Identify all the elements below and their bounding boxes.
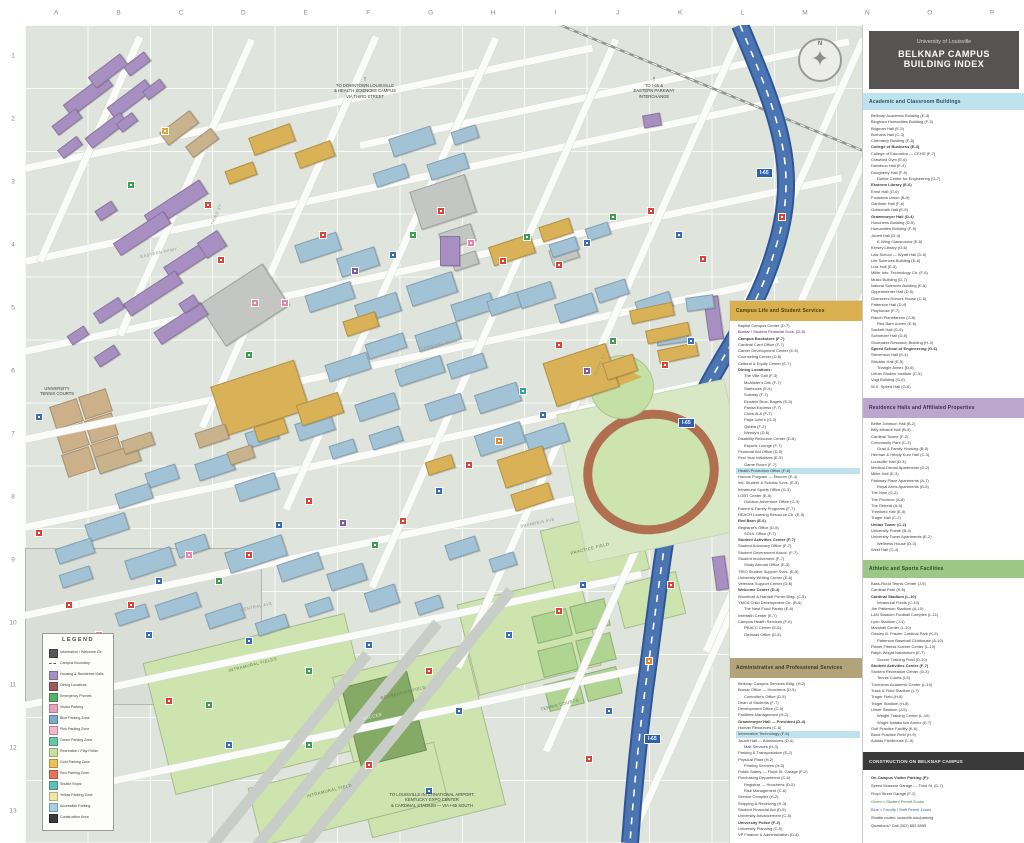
legend-color-swatch	[49, 814, 58, 823]
legend-color-swatch	[49, 649, 58, 658]
section-header: Administrative and Professional Services	[730, 658, 864, 678]
legend-item: Recreation / Play Fields	[43, 746, 113, 757]
grid-number: 8	[11, 493, 15, 500]
building-index-sidebar: University of Louisville BELKNAP CAMPUS …	[862, 25, 1024, 843]
north-arrow-icon: ↑	[606, 76, 702, 83]
annotation-line: VIA THIRD STREET	[300, 94, 430, 99]
index-entry: Adidas Fieldhouse (L-9)	[869, 738, 1021, 744]
grid-letter: J	[616, 10, 619, 17]
index-entry: Shuttle routes: louisville.edu/parking	[869, 814, 1021, 822]
map-legend: LEGEND Information / Welcome Ctr.Campus …	[42, 633, 114, 831]
grid-number: 11	[10, 682, 17, 689]
index-entry: Floyd Street Garage (F-2)	[869, 790, 1021, 798]
legend-color-swatch	[49, 726, 58, 735]
street-name-label: THIRD ST	[209, 203, 223, 226]
grid-letter: A	[54, 10, 58, 17]
grid-number: 2	[11, 116, 15, 123]
university-name: University of Louisville	[869, 31, 1019, 45]
legend-item-label: Visitor Parking	[60, 705, 83, 709]
boundary-line-swatch	[49, 663, 56, 664]
section-header: CONSTRUCTION ON BELKNAP CAMPUS	[863, 752, 1024, 770]
academic-buildings-list: Belknap Academic Building (E-4)Bingham H…	[869, 113, 1021, 395]
legend-color-swatch	[49, 693, 58, 702]
index-entry: Speed Museum Garage — Third St. (D-7)	[869, 782, 1021, 790]
annotation-line: TENNIS COURTS	[26, 391, 88, 396]
grid-letter: E	[304, 10, 308, 17]
residence-halls-list: Bettie Johnson Hall (B-2)Billy Minardi H…	[869, 421, 1021, 556]
legend-item: Dining Locations	[43, 680, 113, 691]
grid-letter: O	[927, 10, 932, 17]
annotation-line: INTERCHANGE	[606, 94, 702, 99]
legend-item: Pink Parking Zone	[43, 724, 113, 735]
legend-color-swatch	[49, 803, 58, 812]
street-name-label: CARDINAL BLVD	[420, 338, 458, 351]
field-label: TENNIS COURTS	[540, 697, 579, 711]
legend-color-swatch	[49, 770, 58, 779]
section-header: Campus Life and Student Services	[730, 301, 864, 321]
legend-item-label: Emergency Phones	[60, 694, 91, 698]
index-entry: Green = Student Permit Zones	[869, 798, 1021, 806]
legend-color-swatch	[49, 748, 58, 757]
grid-letter: F	[366, 10, 370, 17]
legend-title: LEGEND	[43, 634, 113, 647]
sidebar-title-line2: BUILDING INDEX	[869, 59, 1019, 69]
grid-letter: H	[491, 10, 496, 17]
campus-life-list: Baptist Campus Center (D-7)Bursar / Stud…	[736, 323, 860, 656]
grid-number: 5	[11, 305, 15, 312]
field-label: PRACTICE FIELD	[570, 541, 610, 555]
legend-item-label: Pink Parking Zone	[60, 727, 89, 731]
legend-color-swatch	[49, 759, 58, 768]
floating-index-panel: Campus Life and Student ServicesBaptist …	[729, 300, 865, 843]
street-name-label: BRANDEIS AVE	[520, 516, 555, 528]
legend-item-label: Shuttle Stops	[60, 782, 81, 786]
grid-letter: L	[741, 10, 745, 17]
grid-number: 3	[11, 179, 15, 186]
legend-item-label: Blue Parking Zone	[60, 716, 90, 720]
legend-item: Yellow Parking Zone	[43, 790, 113, 801]
legend-item: Accessible Parking	[43, 801, 113, 812]
legend-item-label: Campus Boundary	[60, 661, 90, 665]
legend-color-swatch	[49, 704, 58, 713]
grid-number: 9	[11, 556, 15, 563]
interstate-65-shield: I-65	[756, 168, 773, 178]
index-entry: VP Finance & Administration (D-4)	[736, 832, 860, 838]
grid-number: 12	[9, 745, 16, 752]
field-label: INTRAMURAL FIELD	[306, 782, 352, 798]
legend-item: Blue Parking Zone	[43, 713, 113, 724]
map-annotation: ↑TO I-65 &EASTERN PARKWAYINTERCHANGE	[606, 76, 702, 99]
index-entry: On-Campus Visitor Parking (P):	[869, 774, 1021, 782]
legend-color-swatch	[49, 792, 58, 801]
section-header: Residence Halls and Affiliated Propertie…	[863, 398, 1024, 418]
interstate-65-shield: I-65	[644, 734, 661, 744]
field-label: SOCCER	[362, 712, 383, 722]
map-annotation: TO LOUISVILLE INTERNATIONAL AIRPORT,KENT…	[352, 792, 512, 808]
legend-color-swatch	[49, 671, 58, 680]
legend-color-swatch	[49, 781, 58, 790]
legend-item-label: Information / Welcome Ctr.	[60, 650, 102, 654]
index-entry: Ombuds Office (D-5)	[736, 632, 860, 638]
athletic-facilities-list: Bass-Rudd Tennis Center (J-9)Cardinal Pa…	[869, 581, 1021, 748]
legend-item-label: Housing & Residence Halls	[60, 672, 104, 676]
legend-item: Housing & Residence Halls	[43, 669, 113, 680]
legend-item: Emergency Phones	[43, 691, 113, 702]
grid-ruler-top: ABCDEFGHIJKLMNOP	[0, 0, 1024, 25]
interstate-65-shield: I-65	[678, 418, 695, 428]
grid-number: 7	[11, 430, 15, 437]
grid-letter: K	[678, 10, 682, 17]
grid-letter: N	[865, 10, 870, 17]
grid-ruler-left: 12345678910111213	[0, 0, 25, 843]
legend-item-label: Red Parking Zone	[60, 771, 89, 775]
legend-color-swatch	[49, 682, 58, 691]
grid-number: 13	[9, 808, 16, 815]
map-annotation: ↑TO DOWNTOWN LOUISVILLE& HEALTH SCIENCES…	[300, 76, 430, 99]
sidebar-title-block: University of Louisville BELKNAP CAMPUS …	[869, 31, 1019, 89]
legend-item: Green Parking Zone	[43, 735, 113, 746]
legend-item: Visitor Parking	[43, 702, 113, 713]
index-entry: West Hall (C-4)	[869, 547, 1021, 553]
north-arrow-icon: ↑	[300, 76, 430, 83]
grid-number: 10	[9, 619, 16, 626]
campus-map-page: I-65I-65I-65↑TO DOWNTOWN LOUISVILLE& HEA…	[0, 0, 1024, 843]
grid-number: 4	[11, 242, 15, 249]
street-name-label: FLOYD ST	[593, 353, 607, 377]
notes: On-Campus Visitor Parking (P):Speed Muse…	[869, 774, 1021, 838]
legend-item-label: Green Parking Zone	[60, 738, 92, 742]
legend-item-label: Recreation / Play Fields	[60, 749, 98, 753]
grid-letter: I	[554, 10, 556, 17]
street-name-label: EASTERN PKWY	[140, 246, 178, 259]
section-header: Academic and Classroom Buildings	[863, 93, 1024, 110]
legend-rows: Information / Welcome Ctr.Campus Boundar…	[43, 647, 113, 823]
section-header: Athletic and Sports Facilities	[863, 560, 1024, 578]
annotation-line: & CARDINAL STADIUM — VIA I-65 SOUTH	[352, 803, 512, 808]
legend-item: Red Parking Zone	[43, 768, 113, 779]
grid-letter: C	[179, 10, 184, 17]
grid-letter: M	[802, 10, 807, 17]
legend-item-label: Gold Parking Zone	[60, 760, 90, 764]
legend-item: Shuttle Stops	[43, 779, 113, 790]
index-entry: Blue = Faculty / Staff Permit Zones	[869, 806, 1021, 814]
street-name-label: CENTRAL AVE	[240, 601, 273, 613]
field-label: INTRAMURAL FIELDS	[228, 656, 277, 673]
legend-item-label: Yellow Parking Zone	[60, 793, 93, 797]
legend-item: Gold Parking Zone	[43, 757, 113, 768]
sidebar-title-line1: BELKNAP CAMPUS	[869, 45, 1019, 59]
legend-item-label: Dining Locations	[60, 683, 87, 687]
grid-number: 1	[11, 53, 15, 60]
grid-letter: B	[116, 10, 120, 17]
grid-letter: P	[990, 10, 994, 17]
map-annotation: UNIVERSITYTENNIS COURTS	[26, 386, 88, 397]
grid-letter: D	[241, 10, 246, 17]
legend-item-label: Construction Area	[60, 815, 89, 819]
legend-color-swatch	[49, 715, 58, 724]
legend-item: Campus Boundary	[43, 658, 113, 669]
administrative-list: Belknap Campus Services Bldg. (H-2)Bursa…	[736, 681, 860, 843]
field-label: RECREATION FIELD	[380, 684, 426, 700]
grid-letter: G	[428, 10, 433, 17]
legend-item-label: Accessible Parking	[60, 804, 90, 808]
grid-number: 6	[11, 367, 15, 374]
index-entry: Questions? Call (502) 852-5555	[869, 822, 1021, 830]
legend-color-swatch	[49, 737, 58, 746]
legend-item: Construction Area	[43, 812, 113, 823]
legend-item: Information / Welcome Ctr.	[43, 647, 113, 658]
index-entry: W.S. Speed Hall (G-6)	[869, 384, 1021, 390]
